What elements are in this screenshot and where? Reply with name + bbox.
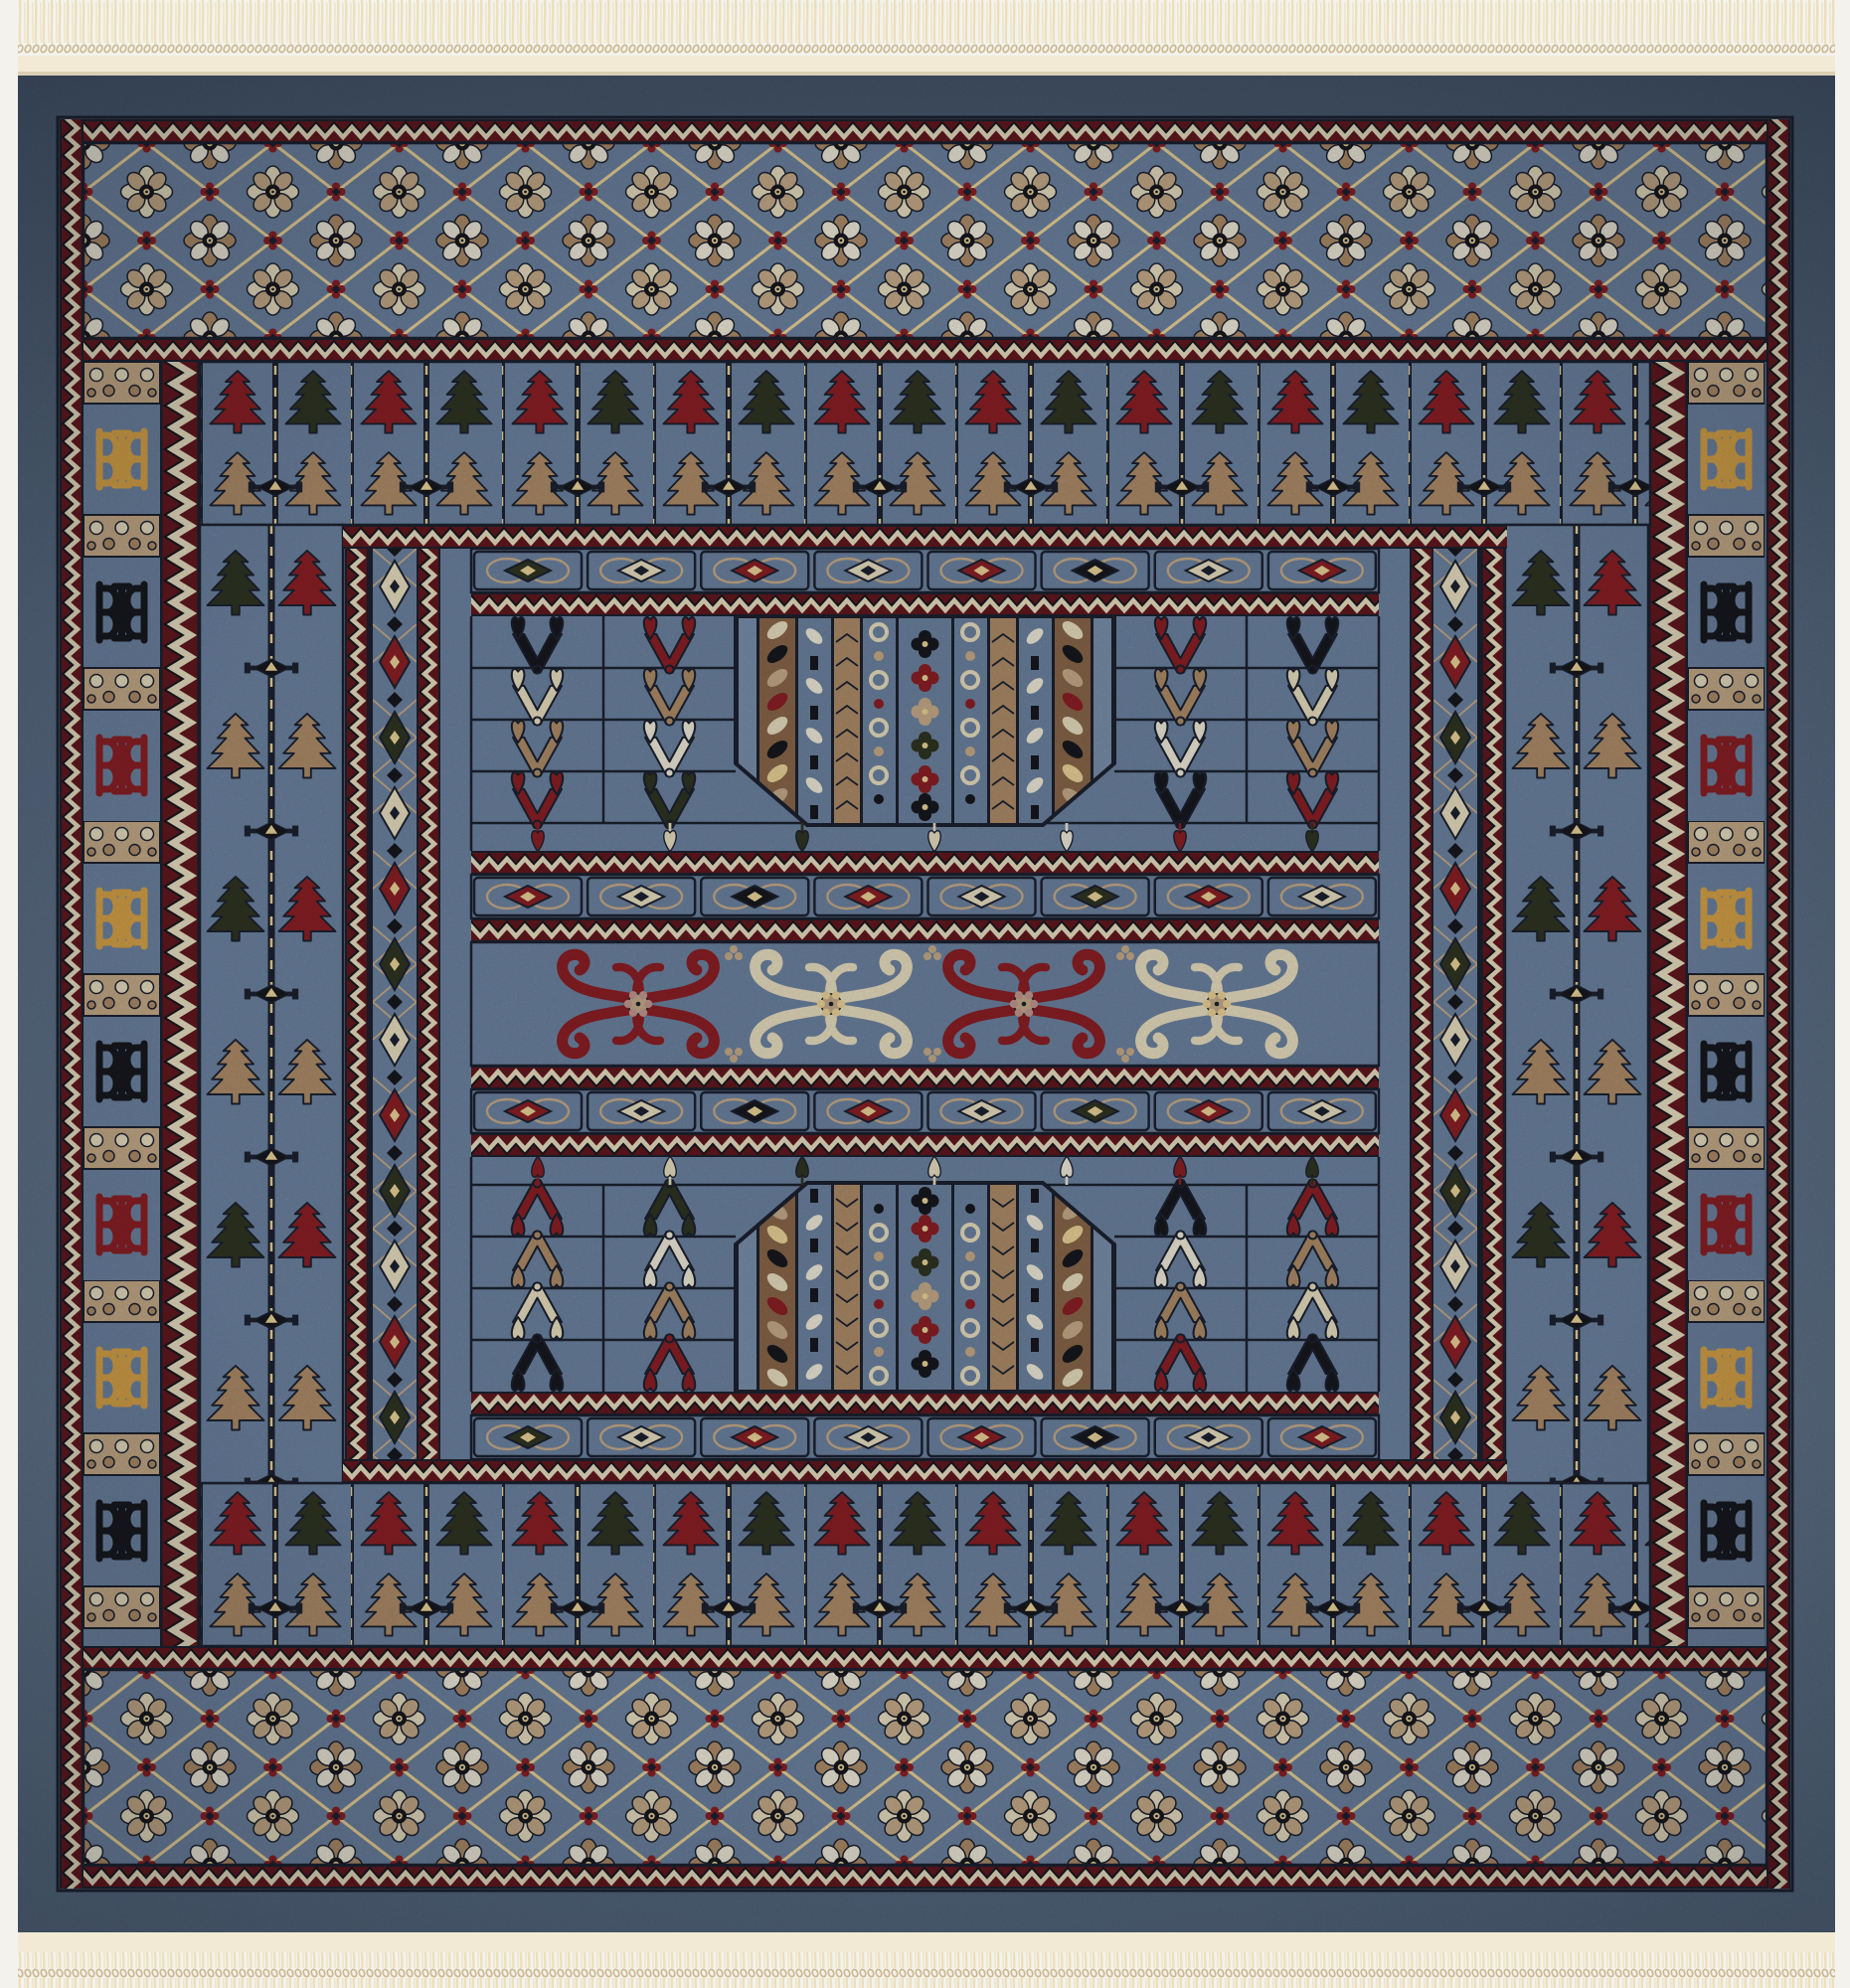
kilim-band-bottom (18, 1932, 1835, 1952)
rug-photo (0, 0, 1850, 1988)
vignette-overlay (18, 76, 1835, 1932)
fringe-bottom (18, 1952, 1835, 1988)
kilim-band-top-shadow (18, 72, 1835, 76)
rug-body (18, 76, 1835, 1932)
fringe-top (18, 0, 1835, 56)
